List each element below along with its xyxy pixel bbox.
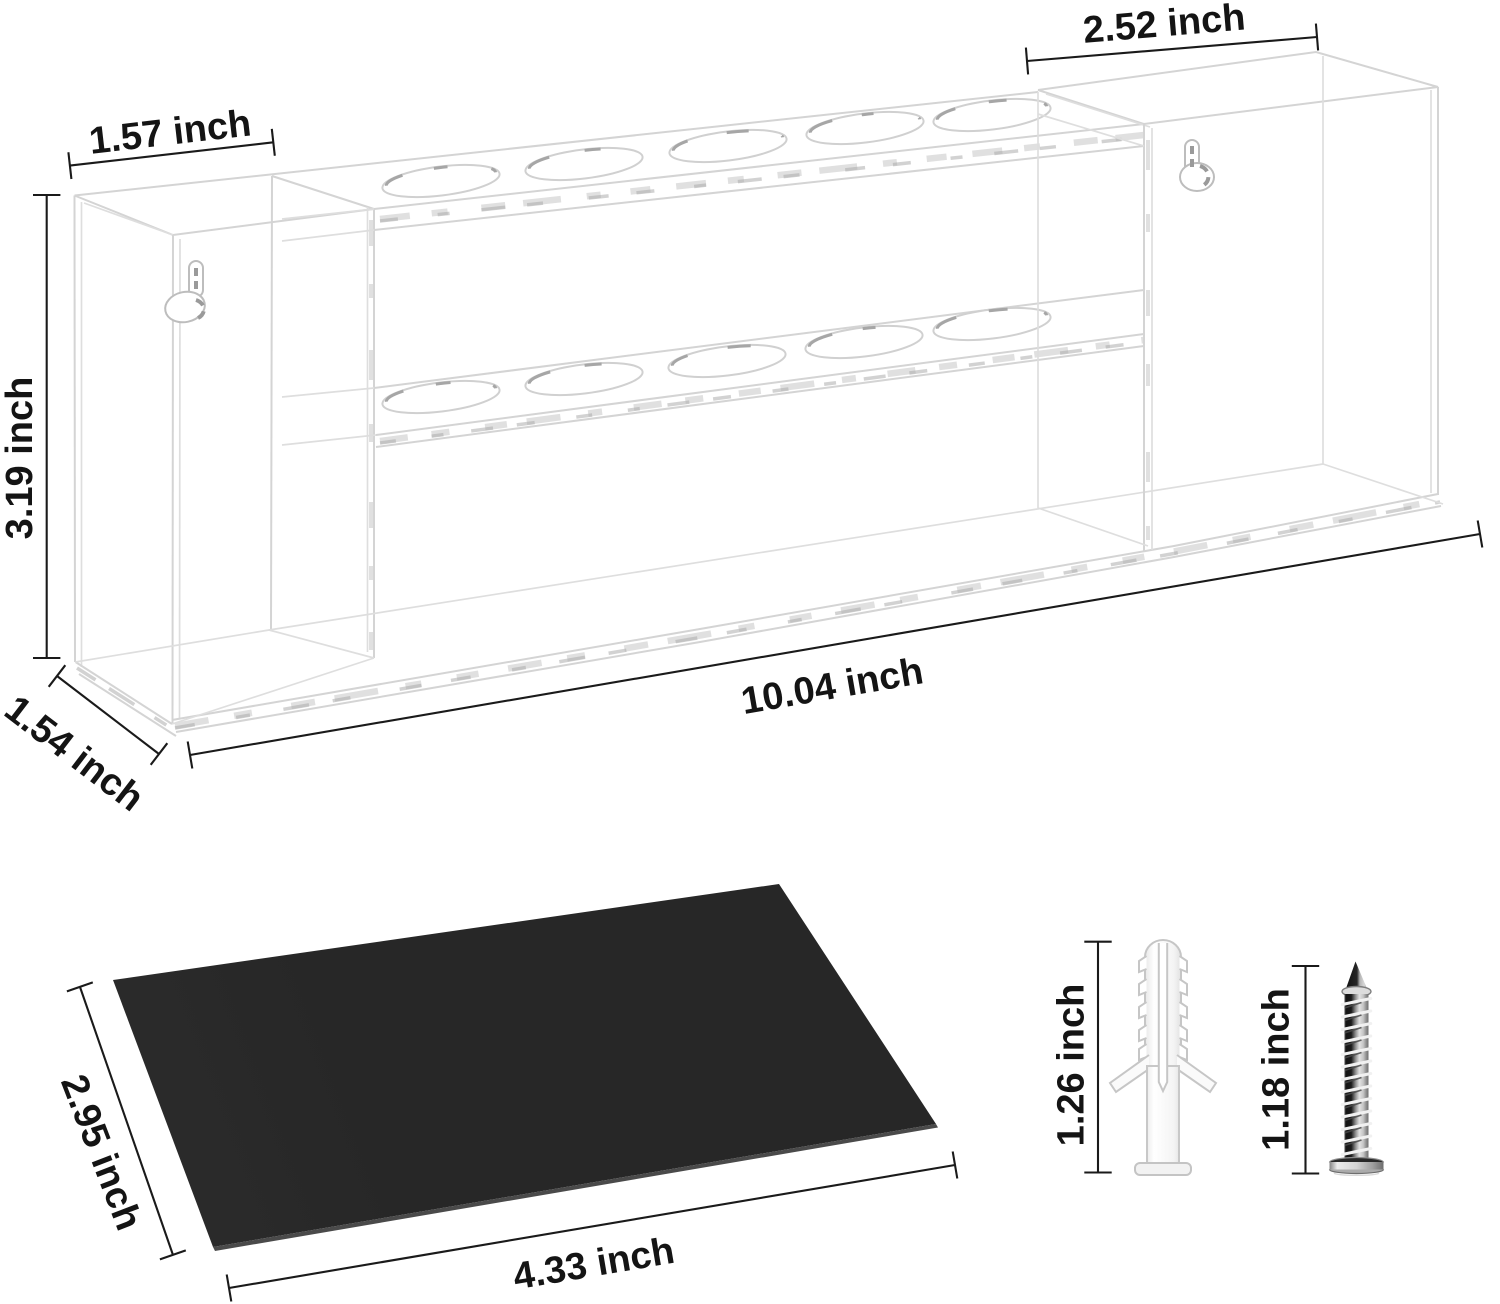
svg-text:3.19 inch: 3.19 inch (0, 377, 41, 540)
svg-text:1.18 inch: 1.18 inch (1256, 988, 1298, 1151)
svg-text:1.26 inch: 1.26 inch (1051, 984, 1093, 1147)
